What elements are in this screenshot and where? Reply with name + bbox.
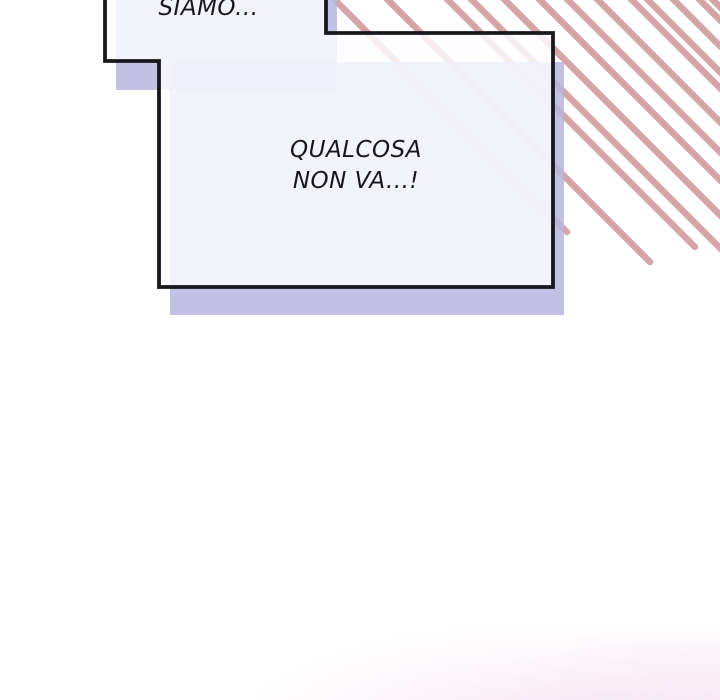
panel-art — [0, 0, 720, 700]
speech-text-main: QUALCOSA NON VA...! — [159, 135, 553, 197]
speech-text-line: NON VA...! — [159, 166, 553, 197]
speech-text-top: SIAMO... — [98, 0, 319, 22]
comic-panel: SIAMO... QUALCOSA NON VA...! — [0, 0, 720, 700]
speech-text-line: QUALCOSA — [159, 135, 553, 166]
